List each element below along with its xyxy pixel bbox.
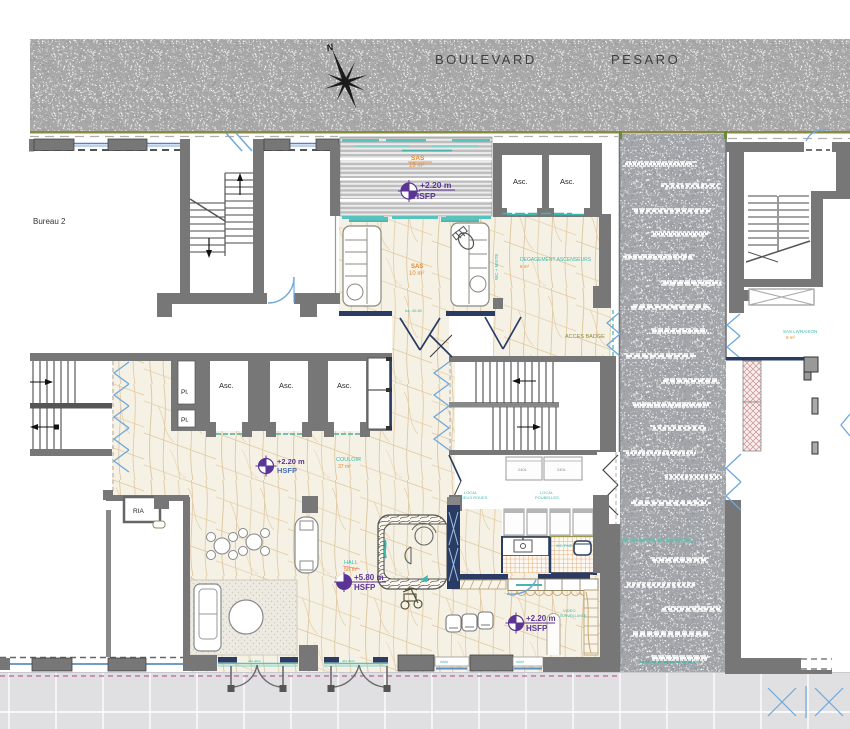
svg-text:HALL: HALL: [344, 560, 358, 566]
svg-text:+2.20 m: +2.20 m: [277, 457, 305, 466]
svg-text:Asc.: Asc.: [337, 381, 352, 390]
svg-text:ddd dddd: ddd dddd: [248, 659, 261, 663]
svg-text:37 m²: 37 m²: [338, 464, 351, 470]
svg-text:ddd dddd: ddd dddd: [342, 659, 355, 663]
svg-text:Bureau 2: Bureau 2: [33, 217, 66, 226]
svg-text:Asc.: Asc.: [513, 177, 528, 186]
svg-text:PESARO: PESARO: [611, 52, 680, 67]
svg-text:240L: 240L: [518, 467, 528, 472]
svg-text:dddd: dddd: [516, 660, 524, 664]
svg-text:WC PMR: WC PMR: [556, 543, 573, 548]
svg-text:8 m²: 8 m²: [520, 264, 530, 269]
svg-text:SURVEILLANCE: SURVEILLANCE: [560, 614, 587, 618]
svg-text:ACCES BADGE: ACCES BADGE: [565, 334, 605, 340]
svg-text:ba. 40-60: ba. 40-60: [405, 308, 423, 313]
svg-text:VIDEO: VIDEO: [563, 608, 575, 613]
svg-text:HSFP: HSFP: [526, 624, 548, 633]
svg-text:+5.80 m: +5.80 m: [354, 573, 384, 582]
svg-text:HSFP: HSFP: [354, 583, 376, 592]
svg-text:SAS: SAS: [411, 264, 423, 270]
svg-text:COULOIR: COULOIR: [336, 457, 361, 463]
svg-text:DEUX ROUES: DEUX ROUES: [461, 495, 488, 500]
svg-text:Asc.: Asc.: [279, 381, 294, 390]
svg-text:10 m²: 10 m²: [409, 271, 424, 277]
svg-text:Asc.: Asc.: [219, 381, 234, 390]
svg-text:POUBELLES: POUBELLES: [535, 495, 559, 500]
svg-text:BOULEVARD: BOULEVARD: [435, 52, 537, 67]
svg-text:9 m²: 9 m²: [786, 335, 796, 340]
svg-text:240L: 240L: [557, 467, 567, 472]
svg-text:RIA: RIA: [133, 508, 145, 515]
svg-text:SAS LIVRAISON: SAS LIVRAISON: [783, 329, 817, 334]
svg-text:WC + MIXTE: WC + MIXTE: [494, 254, 499, 280]
svg-text:+2.20 m: +2.20 m: [526, 614, 556, 623]
svg-text:SAS: SAS: [411, 155, 425, 162]
svg-text:Asc.: Asc.: [560, 177, 575, 186]
svg-text:Pl.: Pl.: [181, 389, 189, 396]
svg-text:DEGAGEMENT ASCENSEURS: DEGAGEMENT ASCENSEURS: [520, 257, 592, 263]
svg-text:Pl.: Pl.: [181, 417, 189, 424]
svg-text:19 m²: 19 m²: [409, 163, 424, 169]
svg-text:HSFP: HSFP: [277, 466, 297, 475]
svg-text:dddd: dddd: [440, 660, 448, 664]
svg-text:HSFP: HSFP: [413, 191, 436, 201]
svg-text:+2.20 m: +2.20 m: [420, 180, 452, 190]
